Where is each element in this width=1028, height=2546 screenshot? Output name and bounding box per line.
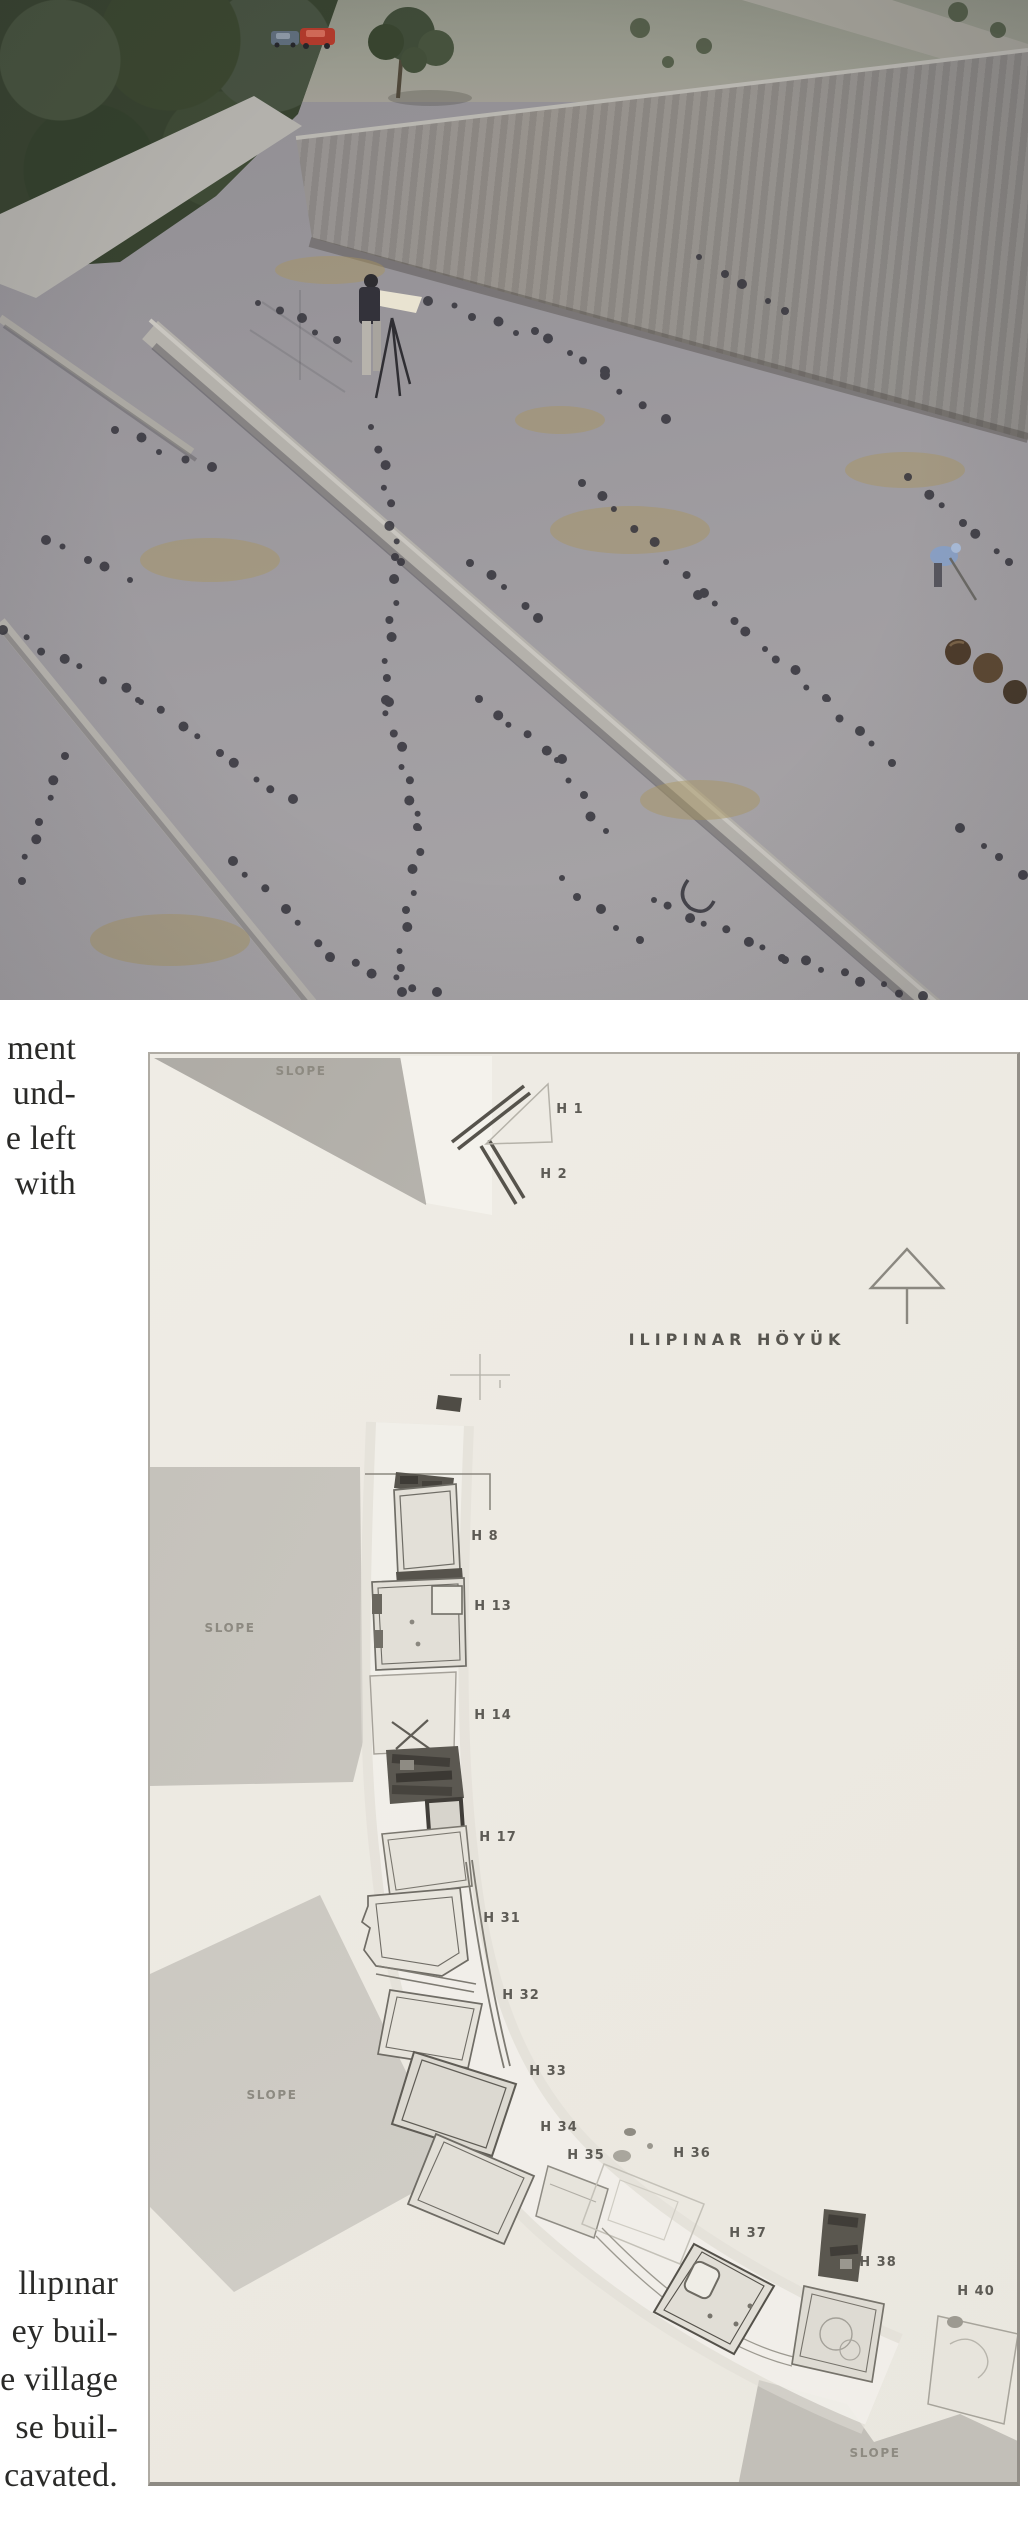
house-label-h-8: H 8	[455, 1529, 515, 1544]
house-label-h-31: H 31	[472, 1911, 532, 1926]
photo-foliage	[0, 0, 1028, 1000]
house-label-h-37: H 37	[718, 2226, 778, 2241]
slope-label-2: SLOPE	[188, 1621, 272, 1635]
surveyor-figure	[359, 274, 422, 398]
house-label-h-40: H 40	[946, 2284, 1006, 2299]
survey-cross-icon	[450, 1354, 510, 1400]
house-label-h-32: H 32	[491, 1988, 551, 2003]
house-label-h-33: H 33	[518, 2064, 578, 2079]
tree	[368, 7, 472, 106]
house-label-h-38: H 38	[848, 2255, 908, 2270]
house-label-h-2: H 2	[524, 1167, 584, 1182]
photo-upper-road	[0, 0, 1028, 1000]
caption-line: se buil-	[0, 2404, 118, 2452]
caption-line: ey buil-	[0, 2308, 118, 2356]
caption-fragment-bottom: llıpınarey buil-e villagese buil-cavated…	[0, 2260, 118, 2500]
slope-label-4: SLOPE	[833, 2446, 917, 2460]
caption-line: e left	[0, 1116, 76, 1161]
photo-detail-overlay	[0, 0, 1028, 1000]
house-h14	[370, 1672, 456, 1754]
house-label-h-14: H 14	[463, 1708, 523, 1723]
house-label-h-17: H 17	[468, 1830, 528, 1845]
house-label-h-36: H 36	[662, 2146, 722, 2161]
house-h38	[792, 2209, 884, 2382]
house-h13	[372, 1578, 466, 1670]
site-plan: ILIPINAR HÖYÜK SLOPESLOPESLOPESLOPEH 1H …	[148, 1052, 1020, 2486]
posthole-dots	[0, 254, 1028, 1000]
caption-line: with	[0, 1161, 76, 1206]
house-label-h-1: H 1	[540, 1102, 600, 1117]
caption-fragment-top: mentund-e leftwith	[0, 1026, 76, 1206]
scanned-page: { "page": {"width": 1028, "height": 2546…	[0, 0, 1028, 2546]
house-label-h-34: H 34	[529, 2120, 589, 2135]
photo-wall-texture	[0, 0, 1028, 1000]
house-label-h-35: H 35	[556, 2148, 616, 2163]
house-walls-burnt	[386, 1746, 464, 1804]
caption-line: e village	[0, 2356, 118, 2404]
shrubs	[630, 2, 1006, 68]
caption-line: ment	[0, 1026, 76, 1071]
north-arrow-icon	[871, 1249, 943, 1324]
house-walls-h1-h2	[452, 1086, 530, 1204]
pottery-vessels	[945, 639, 1027, 704]
house-h40	[928, 2316, 1017, 2424]
house-h8	[394, 1472, 463, 1585]
worker-figure	[930, 543, 976, 600]
slope-label-1: SLOPE	[259, 1064, 343, 1078]
photo-section-wall	[0, 0, 1028, 1000]
excavation-photo	[0, 0, 1028, 1000]
photo-soil-patches	[90, 256, 965, 966]
parked-cars	[271, 28, 335, 49]
caption-line: cavated.	[0, 2452, 118, 2500]
slope-label-3: SLOPE	[230, 2088, 314, 2102]
photo-upper-ground	[0, 0, 1028, 102]
site-title: ILIPINAR HÖYÜK	[587, 1330, 887, 1349]
caption-line: llıpınar	[0, 2260, 118, 2308]
photo-dirt-road	[0, 0, 1028, 1000]
caption-line: und-	[0, 1071, 76, 1116]
house-label-h-13: H 13	[463, 1599, 523, 1614]
house-h31	[362, 1888, 468, 1976]
